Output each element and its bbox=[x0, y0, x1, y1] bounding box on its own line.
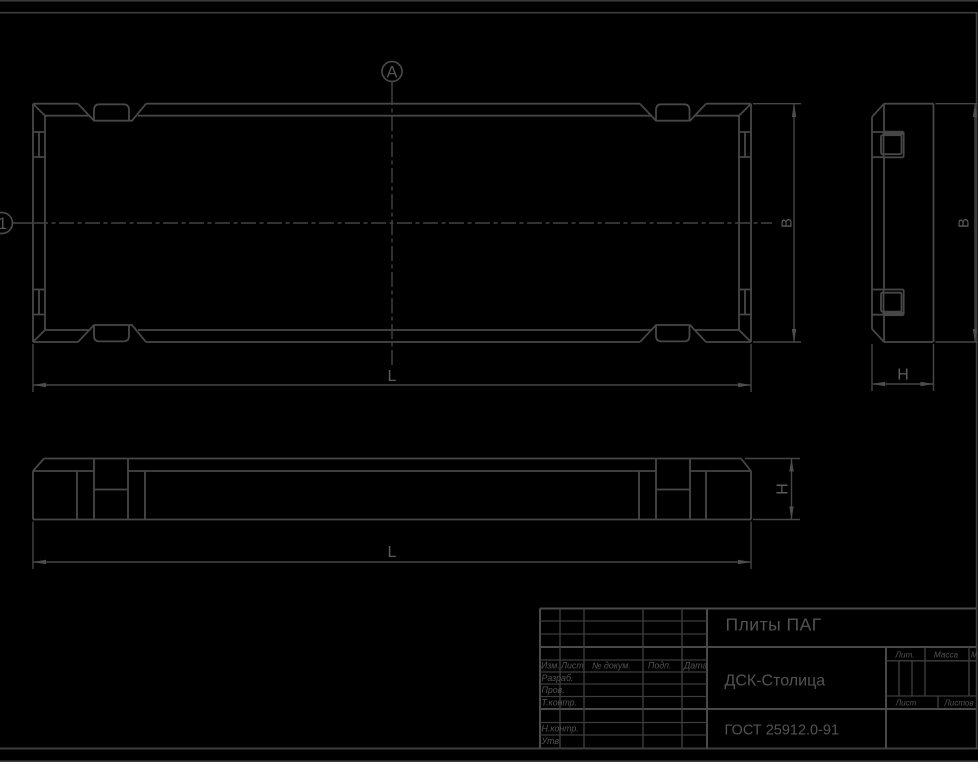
svg-text:Лист: Лист bbox=[895, 699, 917, 708]
svg-text:Листов: Листов bbox=[943, 699, 973, 708]
svg-text:Дата: Дата bbox=[683, 661, 707, 671]
svg-text:Лит.: Лит. bbox=[894, 651, 914, 660]
svg-text:B: B bbox=[780, 218, 796, 228]
svg-text:Подп.: Подп. bbox=[648, 661, 671, 671]
svg-text:Разраб.: Разраб. bbox=[542, 673, 574, 683]
svg-text:Утв.: Утв. bbox=[541, 736, 562, 746]
svg-text:Изм.: Изм. bbox=[541, 661, 560, 671]
svg-text:Масса: Масса bbox=[934, 651, 959, 660]
svg-text:Лист: Лист bbox=[560, 661, 584, 671]
svg-text:Т.контр.: Т.контр. bbox=[542, 698, 578, 708]
svg-text:B: B bbox=[957, 218, 973, 228]
svg-text:А: А bbox=[386, 64, 397, 82]
svg-text:ГОСТ 25912.0-91: ГОСТ 25912.0-91 bbox=[725, 723, 840, 739]
svg-text:H: H bbox=[775, 483, 792, 495]
svg-text:Плиты ПАГ: Плиты ПАГ bbox=[726, 615, 822, 635]
svg-text:H: H bbox=[897, 367, 909, 384]
svg-text:Н.контр.: Н.контр. bbox=[542, 724, 579, 734]
svg-text:Пров.: Пров. bbox=[542, 685, 565, 695]
svg-text:1: 1 bbox=[0, 215, 7, 233]
svg-text:ДСК-Столица: ДСК-Столица bbox=[725, 673, 826, 690]
svg-text:L: L bbox=[388, 368, 397, 385]
svg-text:Масштаб: Масштаб bbox=[971, 651, 978, 660]
svg-text:№ докум.: № докум. bbox=[592, 661, 631, 671]
svg-text:L: L bbox=[388, 544, 397, 561]
